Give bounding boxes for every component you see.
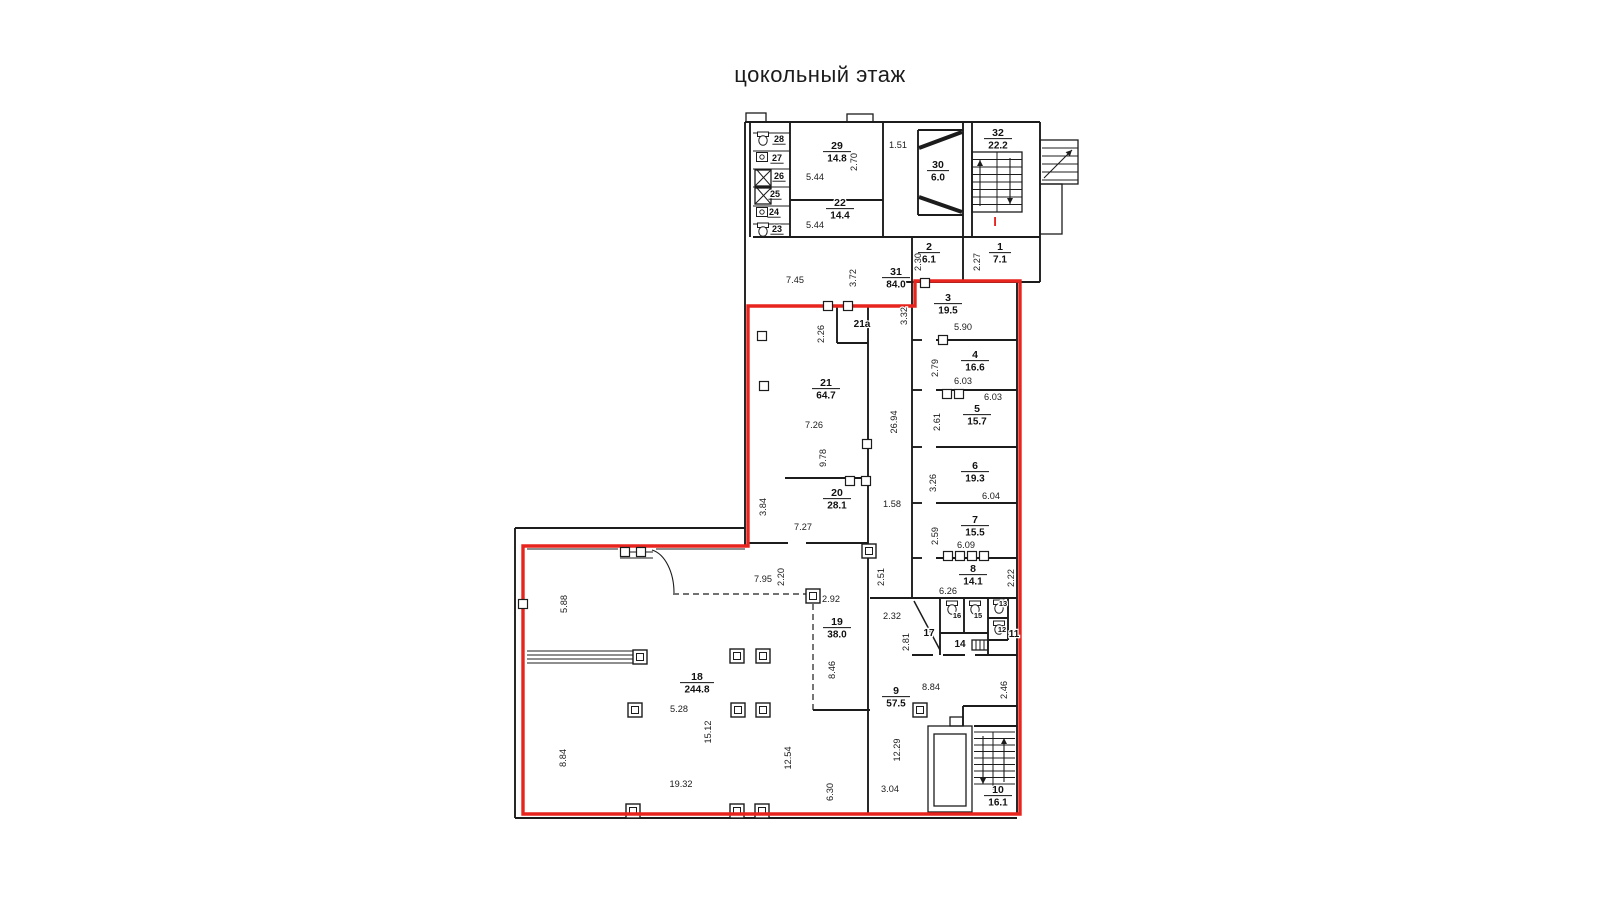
dimension-label: 6.26 [939,586,957,596]
column-outer [756,703,770,717]
room-number: 5 [974,403,980,415]
fixtures-layer [626,132,1005,818]
stairs-layer [972,148,1078,784]
room-label-30: 306.0 [927,159,949,184]
structure-rect [950,717,963,726]
wall-box-symbol [862,477,871,486]
column-outer [730,649,744,663]
room-number: 30 [932,159,944,171]
dimensions-layer: 5.442.705.441.517.453.722.302.275.903.32… [558,140,1016,801]
dimension-label: 6.30 [825,783,835,801]
dimension-label: 1.51 [889,140,907,150]
room-label-20: 2028.1 [823,487,851,512]
column-outer [628,703,642,717]
room-number-plain: 17 [923,628,935,639]
wall-box-symbol [637,548,646,557]
wall-box-symbol [844,302,853,311]
dimension-label: 26.94 [889,411,899,434]
room-area: 19.3 [965,474,985,485]
arrow-head-icon [1007,198,1013,204]
room-number: 3 [945,292,951,304]
room-number: 23 [772,224,782,234]
room-label-5: 515.7 [963,403,991,428]
room-number: 4 [972,349,978,361]
room-label-1: 17.1 [989,241,1011,266]
dimension-label: 7.45 [786,275,804,285]
room-number-plain: 13 [999,599,1007,608]
dimension-label: 8.84 [922,682,940,692]
room-label-3: 319.5 [934,292,962,317]
wall-box-symbol [980,552,989,561]
column-outer [633,650,647,664]
room-number-plain: 15 [974,611,982,620]
dimension-label: 19.32 [670,779,693,789]
room-number: 9 [893,685,899,697]
wall-box-symbol [968,552,977,561]
dimension-label: 5.88 [559,595,569,613]
room-area: 16.6 [965,363,985,374]
wall-box-symbol [621,548,630,557]
column-outer [731,703,745,717]
dimension-label: 2.51 [876,568,886,586]
structure-rect [746,113,766,122]
dimension-label: 15.12 [703,721,713,744]
toilet-icon [758,223,769,236]
column [730,804,744,818]
room-number: 7 [972,514,978,526]
column-outer [730,804,744,818]
room-area: 64.7 [816,391,836,402]
column [913,703,927,717]
room-number-plain: 25 [768,189,781,199]
room-label-4: 416.6 [961,349,989,374]
dimension-label: 2.20 [776,568,786,586]
room-number: 21a [854,319,871,330]
room-number: 1 [997,241,1003,253]
room-number-plain: 12 [998,625,1006,634]
room-area: 7.1 [993,255,1007,266]
room-number: 25 [770,189,780,199]
wall-box-symbol [955,390,964,399]
room-label-9: 957.5 [882,685,910,710]
column [731,703,745,717]
floor-plan-canvas: цокольный этаж I5.442.705.441.517.453.72… [0,0,1600,900]
structure-rect [847,114,873,122]
dimension-label: 3.72 [848,269,858,287]
room-label-7: 715.5 [961,514,989,539]
wall-box-symbol [863,440,872,449]
wall-box-symbol [956,552,965,561]
dimension-label: 5.44 [806,172,824,182]
dimension-label: 2.92 [822,594,840,604]
dimension-label: 5.44 [806,220,824,230]
dimension-label: 2.27 [972,253,982,271]
structure-rect [1040,140,1078,184]
room-number: 14 [954,639,966,650]
room-area: 6.0 [931,173,945,184]
room-area: 19.5 [938,306,958,317]
column [806,589,820,603]
diagonal-line [919,132,962,148]
room-number: 2 [926,241,932,253]
room-number: 18 [691,671,703,683]
wall-box-symbol [760,382,769,391]
room-area: 15.7 [967,417,987,428]
room-number: 29 [831,140,843,152]
dimension-label: 12.29 [892,739,902,762]
room-label-8: 814.1 [959,563,987,588]
room-number: 20 [831,487,843,499]
column [756,649,770,663]
room-number: 16 [953,611,961,620]
column-outer [806,589,820,603]
column [633,650,647,664]
room-label-6: 619.3 [961,460,989,485]
dimension-label: 2.70 [849,153,859,171]
room-area: 14.1 [963,577,983,588]
room-area: 84.0 [886,280,906,291]
room-number: 22 [834,197,846,209]
column-outer [755,804,769,818]
dimension-label: 3.84 [758,498,768,516]
dimension-label: 2.22 [1006,569,1016,587]
column-outer [626,804,640,818]
room-number: 8 [970,563,976,575]
wall-box-symbol [846,477,855,486]
room-number: 31 [890,266,902,278]
dimension-label: 12.54 [783,747,793,770]
room-number-plain: 27 [770,153,783,163]
room-label-21: 2164.7 [812,377,840,402]
room-number-plain: 23 [770,224,783,234]
arrow-head-icon [980,778,986,784]
dimension-label: 2.79 [930,359,940,377]
room-number-plain: 14 [954,639,966,650]
room-number-plain: 24 [767,207,780,217]
dimension-label: 6.03 [954,376,972,386]
wall-box-symbol [943,390,952,399]
wall-box-symbol [519,600,528,609]
room-area: 15.5 [965,528,985,539]
column [756,703,770,717]
column-outer [913,703,927,717]
arrow-head-icon [977,160,983,166]
dimension-label: 6.03 [984,392,1002,402]
room-label-32: 3222.2 [984,127,1012,152]
dimension-label: 5.90 [954,322,972,332]
room-number: 21 [820,377,832,389]
column [755,804,769,818]
room-number-plain: 11 [1009,629,1020,640]
dimension-label: 2.32 [883,611,901,621]
sink-basin [757,153,768,162]
dimension-label: 7.26 [805,420,823,430]
room-number: 12 [998,625,1006,634]
sink-icon [757,153,768,162]
dimension-label: 7.27 [794,522,812,532]
room-number-plain: 21a [854,319,871,330]
room-number: 17 [923,628,935,639]
room-number-plain: 28 [772,134,785,144]
door-swing-arc [652,550,674,593]
room-number: 24 [769,207,779,217]
wall-box-symbol [824,302,833,311]
room-area: 38.0 [827,630,847,641]
toilet-bowl [759,136,767,146]
room-number: 26 [774,171,784,181]
wall-box-symbol [944,552,953,561]
dimension-label: 5.28 [670,704,688,714]
wall-box-symbol [921,279,930,288]
room-number-plain: 16 [953,611,961,620]
room-area: 57.5 [886,699,906,710]
dimension-label: 7.95 [754,574,772,584]
dimension-label: 2.26 [816,325,826,343]
room-number: 6 [972,460,978,472]
dimension-label: 8.46 [827,661,837,679]
wall-box-symbol [758,332,767,341]
room-number: 15 [974,611,982,620]
column-outer [756,649,770,663]
dimension-label: 2.81 [901,633,911,651]
stair-mark-label: I [993,214,997,229]
room-area: 244.8 [684,685,709,696]
room-area: 22.2 [988,141,1008,152]
room-number: 11 [1009,629,1020,640]
room-number: 13 [999,599,1007,608]
dimension-label: 8.84 [558,749,568,767]
dimension-label: 2.61 [932,413,942,431]
room-label-10: 1016.1 [984,784,1012,809]
dimension-label: 3.26 [928,474,938,492]
sink-basin [757,208,768,217]
room-area: 14.8 [827,154,847,165]
dimension-label: 2.46 [999,681,1009,699]
room-label-18: 18244.8 [680,671,714,696]
room-area: 14.4 [830,211,850,222]
room-number: 19 [831,616,843,628]
room-area: 6.1 [922,255,936,266]
room-number: 28 [774,134,784,144]
room-number: 27 [772,153,782,163]
column [730,649,744,663]
dimension-label: 9.78 [818,449,828,467]
floor-plan-svg: I5.442.705.441.517.453.722.302.275.903.3… [0,0,1600,900]
column [628,703,642,717]
wall-box-symbol [939,336,948,345]
diagonal-line [919,197,962,212]
room-label-31: 3184.0 [882,266,910,291]
room-number-plain: 26 [772,171,785,181]
dimension-label: 6.04 [982,491,1000,501]
room-number: 32 [992,127,1004,139]
dimension-label: 1.58 [883,499,901,509]
structure-rect [934,734,966,806]
dimension-label: 2.59 [930,527,940,545]
dimension-label: 3.32 [899,307,909,325]
column [626,804,640,818]
room-area: 28.1 [827,501,847,512]
room-number: 10 [992,784,1004,796]
structure-rect [1040,184,1062,234]
room-area: 16.1 [988,798,1008,809]
toilet-icon [758,132,769,145]
column [862,544,876,558]
toilet-bowl [759,227,767,237]
dimension-label: 6.09 [957,540,975,550]
dimension-label: 3.04 [881,784,899,794]
column-outer [862,544,876,558]
sink-icon [757,208,768,217]
room-label-19: 1938.0 [823,616,851,641]
room-label-29: 2914.8 [823,140,851,165]
diagonal-line [914,601,940,650]
